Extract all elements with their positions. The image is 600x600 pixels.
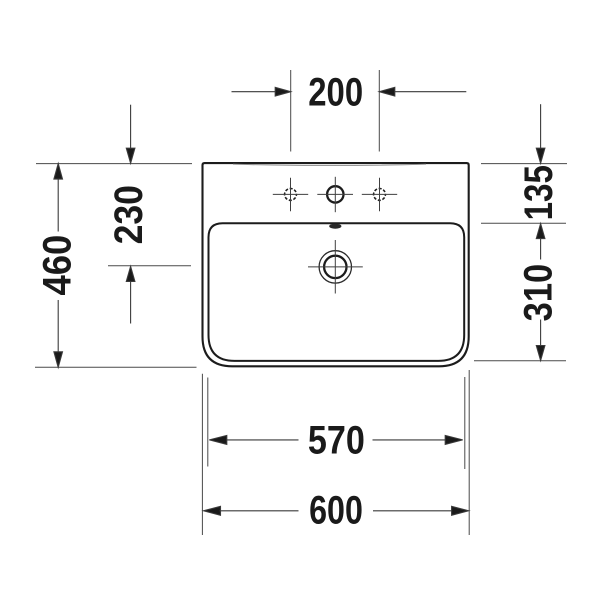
svg-text:600: 600 (309, 487, 363, 532)
svg-text:230: 230 (107, 185, 151, 244)
svg-text:200: 200 (308, 69, 363, 114)
svg-text:310: 310 (515, 264, 560, 322)
svg-text:135: 135 (516, 165, 561, 220)
svg-text:570: 570 (308, 417, 365, 462)
svg-text:460: 460 (35, 235, 80, 296)
